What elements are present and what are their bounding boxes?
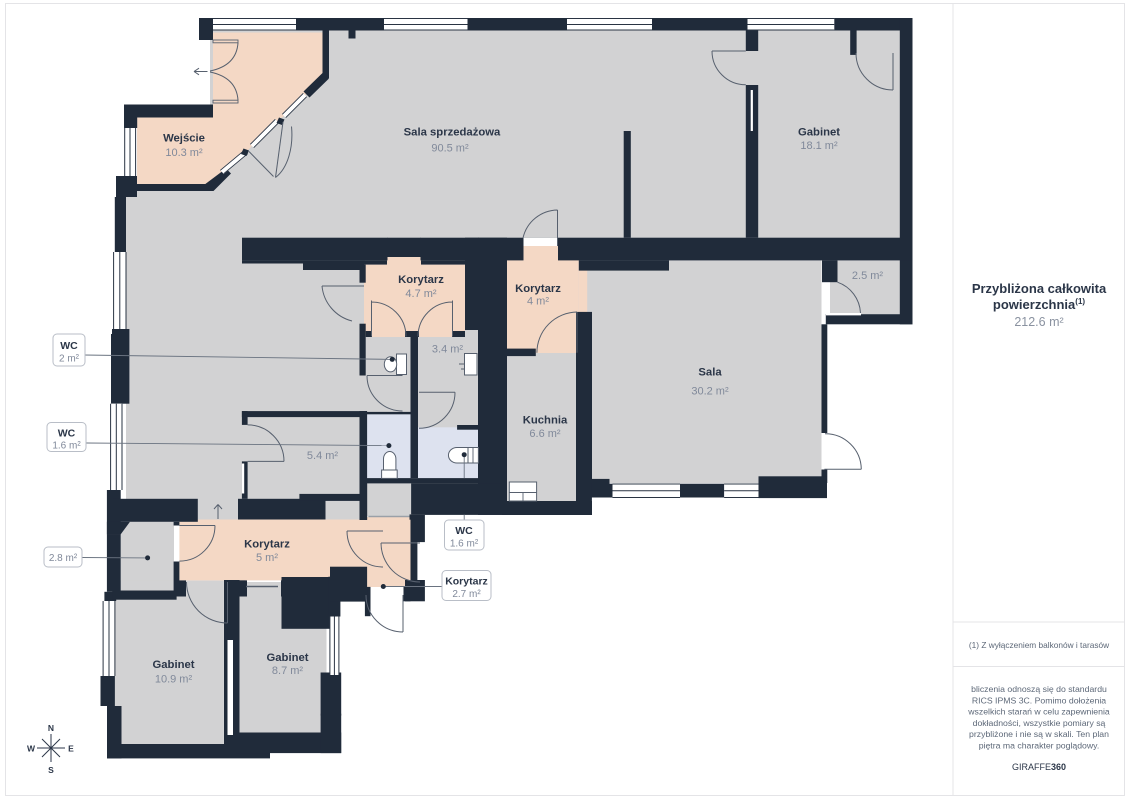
svg-text:S: S (48, 765, 54, 775)
svg-text:3.4 m²: 3.4 m² (432, 344, 464, 356)
svg-text:4 m²: 4 m² (527, 296, 549, 308)
svg-text:W: W (27, 744, 36, 754)
svg-text:Sala: Sala (698, 367, 722, 379)
svg-text:2 m²: 2 m² (59, 354, 80, 365)
svg-text:Kuchnia: Kuchnia (523, 415, 568, 427)
svg-text:1.6 m²: 1.6 m² (450, 539, 479, 550)
svg-text:Gabinet: Gabinet (798, 127, 840, 139)
svg-text:2.8 m²: 2.8 m² (49, 553, 78, 564)
svg-text:Korytarz: Korytarz (445, 576, 488, 588)
svg-text:Korytarz: Korytarz (244, 539, 290, 551)
svg-text:Wejście: Wejście (163, 133, 205, 145)
svg-text:90.5 m²: 90.5 m² (431, 143, 469, 155)
svg-text:Korytarz: Korytarz (515, 283, 561, 295)
svg-text:5.4 m²: 5.4 m² (307, 450, 339, 462)
svg-text:E: E (68, 744, 74, 754)
svg-text:Sala sprzedażowa: Sala sprzedażowa (404, 127, 501, 139)
svg-text:2.5 m²: 2.5 m² (852, 270, 884, 282)
svg-text:Gabinet: Gabinet (266, 652, 308, 664)
svg-text:GIRAFFE360: GIRAFFE360 (1012, 762, 1066, 772)
svg-text:30.2 m²: 30.2 m² (691, 386, 729, 398)
svg-text:8.7 m²: 8.7 m² (272, 665, 304, 677)
svg-text:10.9 m²: 10.9 m² (155, 674, 193, 686)
svg-text:Gabinet: Gabinet (152, 659, 194, 671)
svg-text:powierzchnia(1): powierzchnia(1) (993, 297, 1085, 312)
svg-text:dokładności, wszystkie pomiary: dokładności, wszystkie pomiary są (973, 718, 1106, 728)
svg-text:6.6 m²: 6.6 m² (529, 428, 561, 440)
svg-text:piętra ma charakter poglądowy.: piętra ma charakter poglądowy. (979, 741, 1100, 751)
svg-text:5 m²: 5 m² (256, 552, 278, 564)
svg-text:10.3 m²: 10.3 m² (165, 147, 203, 159)
svg-text:Korytarz: Korytarz (398, 274, 444, 286)
svg-text:WC: WC (455, 525, 473, 537)
svg-text:RICS IPMS 3C. Pomimo dołożenia: RICS IPMS 3C. Pomimo dołożenia (972, 695, 1106, 705)
svg-text:N: N (48, 723, 54, 733)
svg-text:przybliżone i nie są w skali.: przybliżone i nie są w skali. Ten plan (969, 729, 1109, 739)
svg-text:18.1 m²: 18.1 m² (800, 140, 838, 152)
svg-text:2.7 m²: 2.7 m² (452, 589, 481, 600)
svg-text:bliczenia odnoszą się do stand: bliczenia odnoszą się do standardu (971, 684, 1107, 694)
svg-text:(1) Z wyłączeniem balkonów i t: (1) Z wyłączeniem balkonów i tarasów (969, 640, 1110, 650)
svg-text:WC: WC (60, 340, 78, 352)
svg-text:Przybliżona całkowita: Przybliżona całkowita (972, 281, 1107, 296)
svg-text:4.7 m²: 4.7 m² (405, 288, 437, 300)
svg-text:212.6 m²: 212.6 m² (1014, 315, 1063, 329)
svg-text:WC: WC (58, 428, 76, 440)
svg-text:wszelkich starań w celu zapewn: wszelkich starań w celu zapewnienia (967, 707, 1110, 717)
svg-text:1.6 m²: 1.6 m² (52, 441, 81, 452)
